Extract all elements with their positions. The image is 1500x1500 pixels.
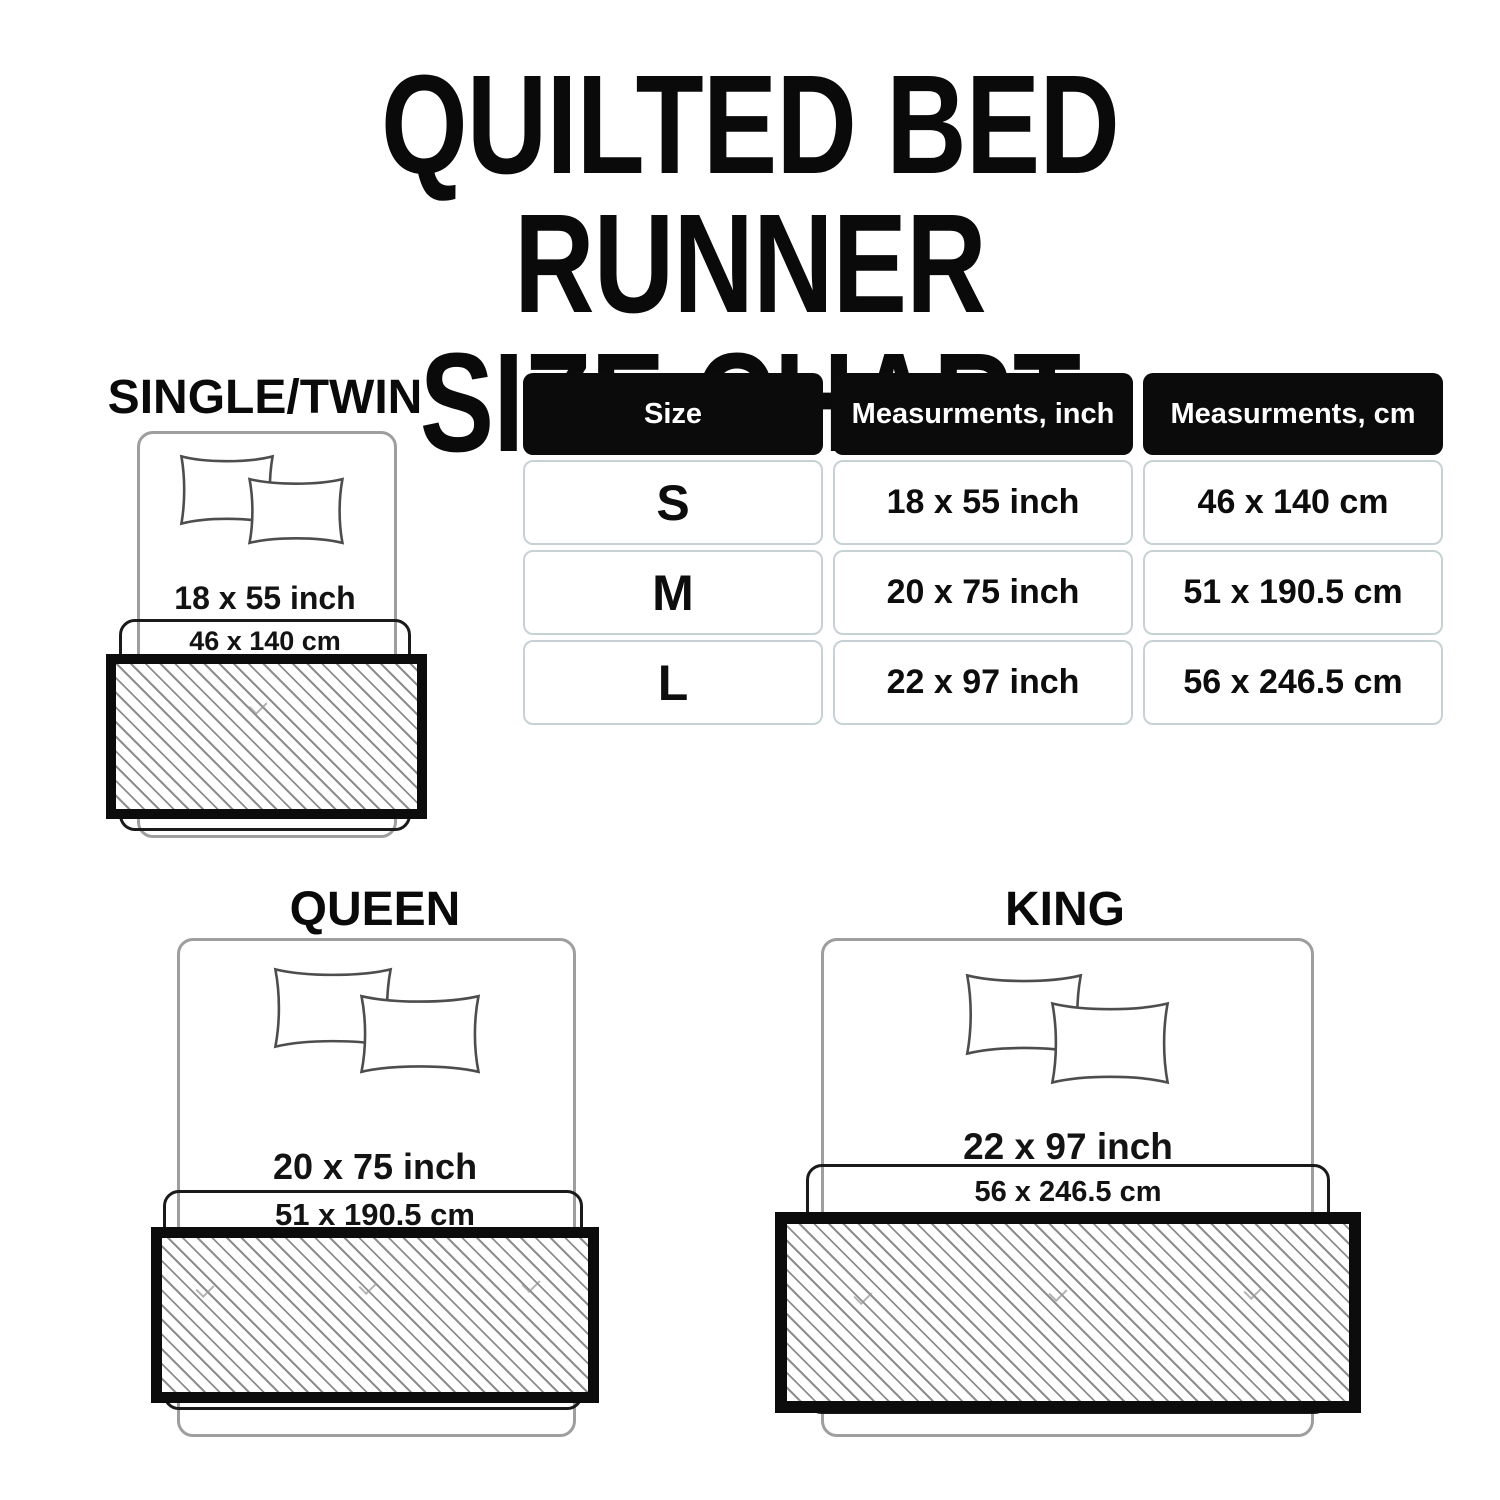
pillow-icon: [242, 473, 350, 549]
king-inch-dimension: 22 x 97 inch: [868, 1126, 1268, 1168]
table-cell-cm-l: 56 x 246.5 cm: [1143, 640, 1443, 725]
single-twin-inch-dimension: 18 x 55 inch: [105, 580, 425, 617]
table-header-cm: Measurments, cm: [1143, 373, 1443, 455]
king-runner-hatched: [775, 1212, 1361, 1413]
single-twin-label: SINGLE/TWIN: [100, 370, 430, 425]
table-cell-cm-s: 46 x 140 cm: [1143, 460, 1443, 545]
size-table: Size Measurments, inch Measurments, cm S…: [523, 373, 1443, 725]
table-header-size: Size: [523, 373, 823, 455]
queen-runner-hatched: [151, 1227, 599, 1403]
single-twin-runner-hatched: [106, 654, 427, 819]
queen-label: QUEEN: [175, 882, 575, 937]
pillow-icon: [1043, 996, 1177, 1090]
queen-inch-dimension: 20 x 75 inch: [175, 1146, 575, 1188]
table-cell-inch-l: 22 x 97 inch: [833, 640, 1133, 725]
table-cell-inch-s: 18 x 55 inch: [833, 460, 1133, 545]
table-cell-size-m: M: [523, 550, 823, 635]
king-cm-dimension: 56 x 246.5 cm: [868, 1176, 1268, 1209]
king-label: KING: [865, 882, 1265, 937]
table-cell-size-l: L: [523, 640, 823, 725]
table-cell-inch-m: 20 x 75 inch: [833, 550, 1133, 635]
single-twin-cm-dimension: 46 x 140 cm: [105, 626, 425, 657]
pillow-icon: [352, 989, 488, 1079]
table-cell-cm-m: 51 x 190.5 cm: [1143, 550, 1443, 635]
table-header-inch: Measurments, inch: [833, 373, 1133, 455]
table-cell-size-s: S: [523, 460, 823, 545]
page-title-line1: QUILTED BED RUNNER: [158, 55, 1343, 333]
